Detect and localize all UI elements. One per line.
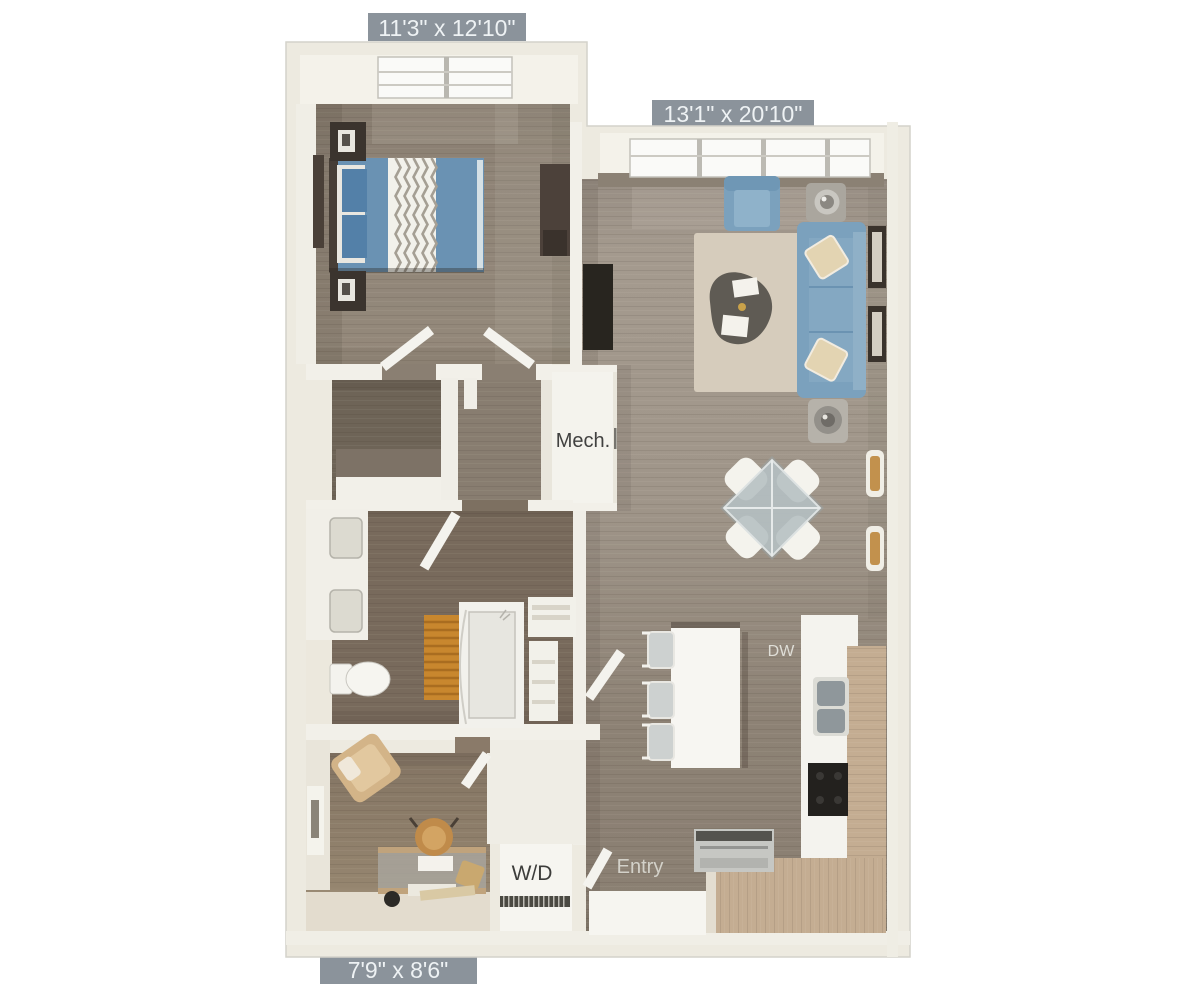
- svg-text:13'1" x 20'10": 13'1" x 20'10": [664, 101, 803, 127]
- svg-text:11'3" x 12'10": 11'3" x 12'10": [378, 15, 515, 41]
- svg-text:Entry: Entry: [617, 856, 664, 878]
- svg-text:7'9" x 8'6": 7'9" x 8'6": [348, 957, 449, 983]
- svg-text:W/D: W/D: [512, 862, 553, 885]
- svg-text:DW: DW: [768, 643, 796, 660]
- svg-text:Mech.: Mech.: [556, 430, 610, 452]
